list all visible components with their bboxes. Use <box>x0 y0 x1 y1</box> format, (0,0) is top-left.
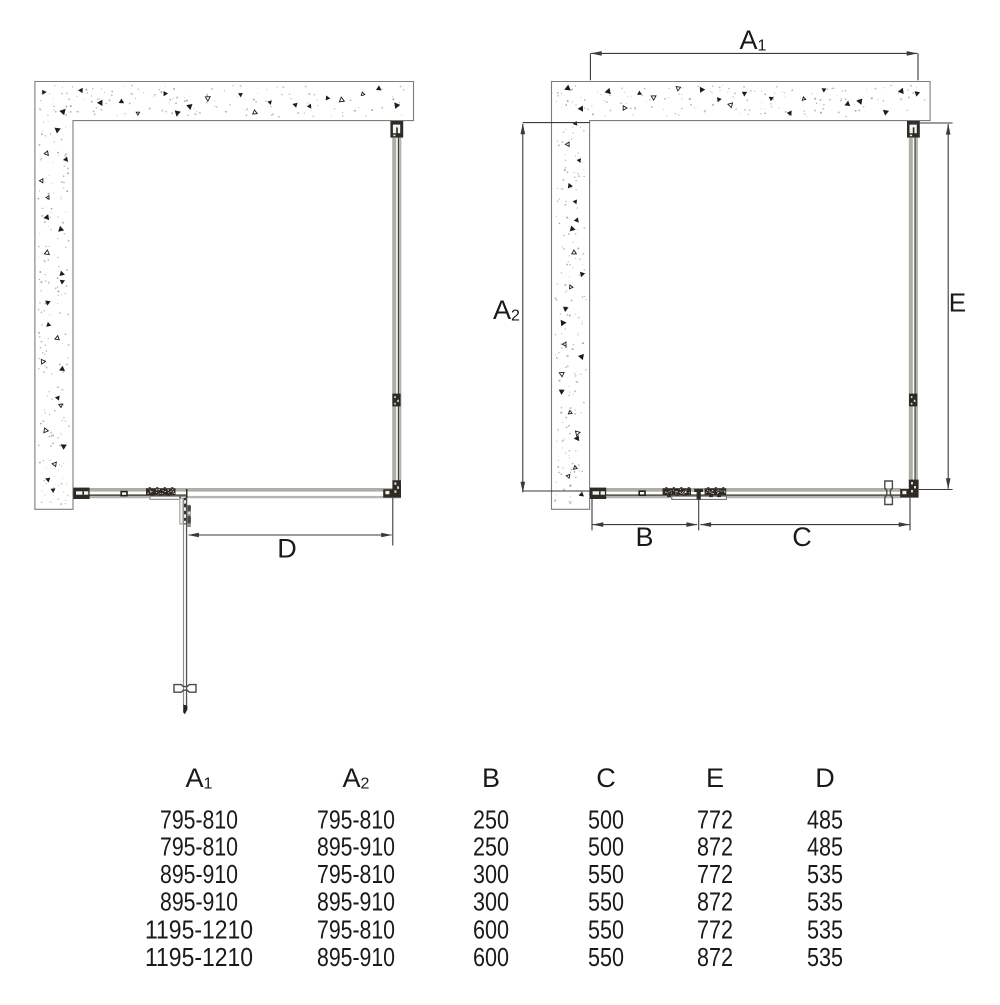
svg-text:1195-1210: 1195-1210 <box>145 914 253 944</box>
svg-text:895-910: 895-910 <box>317 886 395 916</box>
svg-text:500: 500 <box>588 804 624 834</box>
svg-text:E: E <box>706 763 724 793</box>
svg-text:D: D <box>277 534 297 564</box>
svg-text:485: 485 <box>807 804 843 834</box>
svg-text:485: 485 <box>807 831 843 861</box>
svg-text:600: 600 <box>473 942 509 972</box>
svg-text:300: 300 <box>473 886 509 916</box>
svg-text:795-810: 795-810 <box>160 831 238 861</box>
svg-text:550: 550 <box>588 914 624 944</box>
svg-text:795-810: 795-810 <box>160 804 238 834</box>
svg-text:535: 535 <box>807 914 843 944</box>
svg-text:550: 550 <box>588 886 624 916</box>
svg-text:550: 550 <box>588 942 624 972</box>
svg-text:D: D <box>815 763 835 793</box>
svg-text:772: 772 <box>697 804 733 834</box>
svg-text:300: 300 <box>473 859 509 889</box>
svg-text:600: 600 <box>473 914 509 944</box>
svg-text:E: E <box>949 288 966 318</box>
svg-text:250: 250 <box>473 804 509 834</box>
svg-text:872: 872 <box>697 831 733 861</box>
svg-text:B: B <box>635 522 653 552</box>
svg-text:1195-1210: 1195-1210 <box>145 942 253 972</box>
svg-text:B: B <box>482 763 500 793</box>
svg-text:C: C <box>596 763 616 793</box>
svg-text:872: 872 <box>697 942 733 972</box>
svg-text:250: 250 <box>473 831 509 861</box>
svg-text:535: 535 <box>807 942 843 972</box>
svg-text:895-910: 895-910 <box>160 886 238 916</box>
svg-text:772: 772 <box>697 859 733 889</box>
svg-text:C: C <box>792 522 812 552</box>
svg-text:795-810: 795-810 <box>317 914 395 944</box>
svg-text:895-910: 895-910 <box>317 831 395 861</box>
svg-text:772: 772 <box>697 914 733 944</box>
svg-text:895-910: 895-910 <box>160 859 238 889</box>
svg-text:535: 535 <box>807 886 843 916</box>
svg-text:795-810: 795-810 <box>317 859 395 889</box>
svg-text:895-910: 895-910 <box>317 942 395 972</box>
svg-text:872: 872 <box>697 886 733 916</box>
svg-text:500: 500 <box>588 831 624 861</box>
svg-text:535: 535 <box>807 859 843 889</box>
svg-text:795-810: 795-810 <box>317 804 395 834</box>
svg-text:550: 550 <box>588 859 624 889</box>
